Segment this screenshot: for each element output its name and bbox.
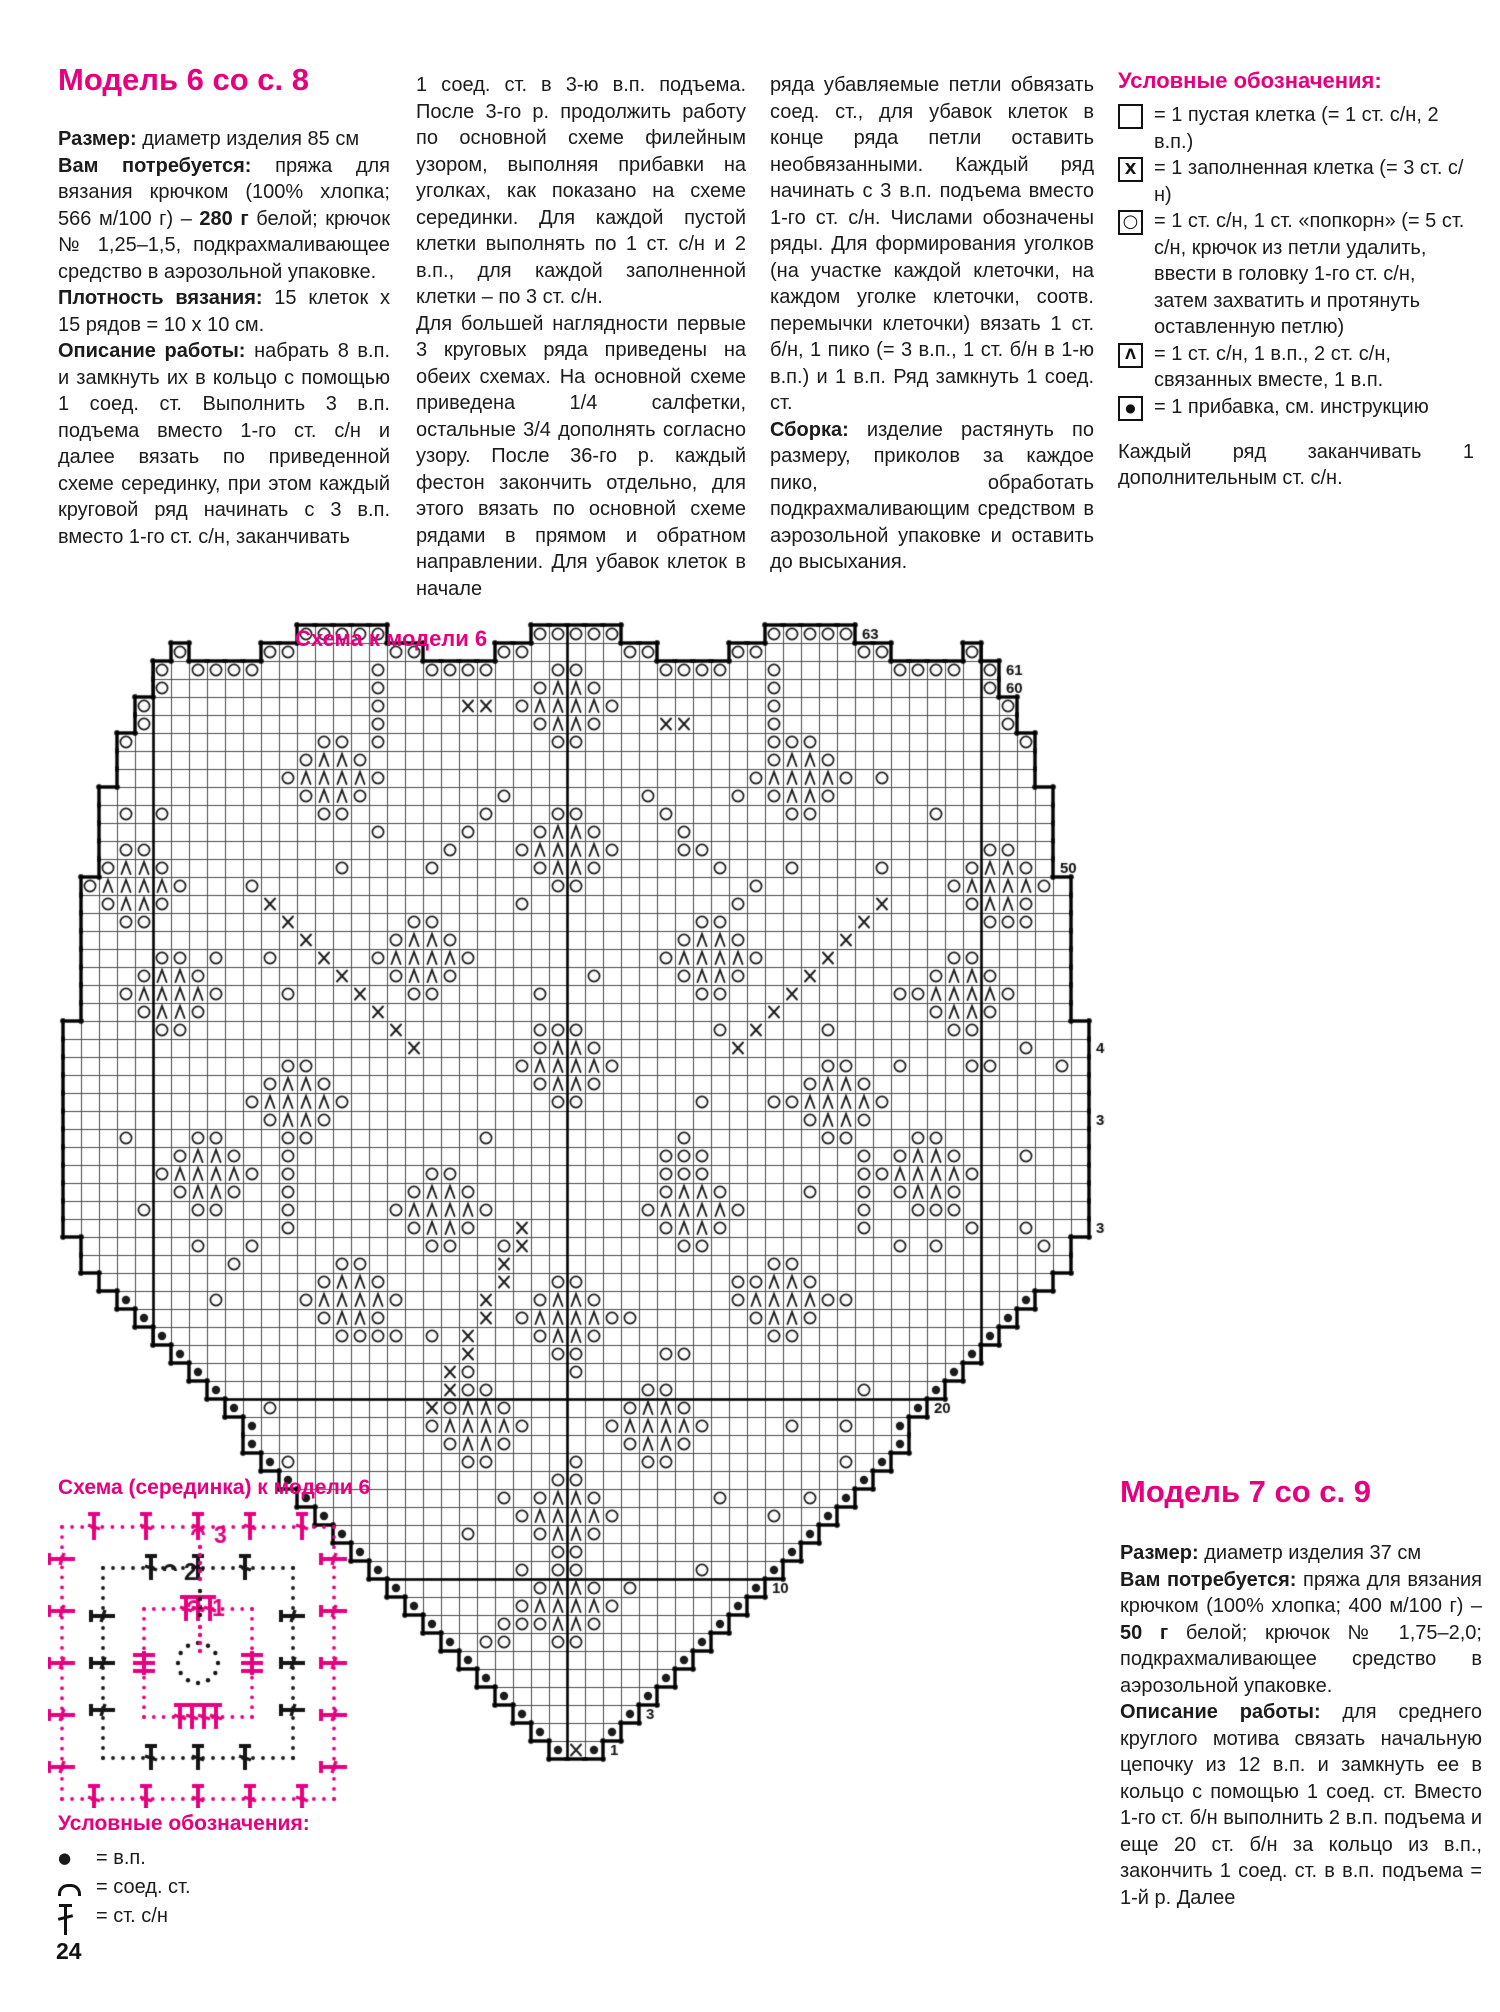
symbol-legend-items: = 1 пустая клетка (= 1 ст. с/н, 2 в.п.)X…: [1118, 102, 1474, 421]
model7-title: Модель 7 со с. 9: [1120, 1474, 1371, 1510]
paragraph: Вам потребуется: пряжа для вязания крючк…: [58, 153, 390, 286]
legend-item: ●= 1 прибавка, см. инструкцию: [1118, 394, 1474, 421]
o-cell-symbol-icon: ○: [1118, 210, 1143, 235]
double-crochet-icon: [58, 1902, 84, 1935]
symbol-legend-note: Каждый ряд заканчивать 1 дополнительным …: [1118, 439, 1474, 492]
paragraph: Описание работы: набрать 8 в.п. и замкну…: [58, 338, 390, 550]
paragraph: Плотность вязания: 15 клеток x 15 рядов …: [58, 285, 390, 338]
model6-title: Модель 6 со с. 8: [58, 62, 309, 98]
small-legend-title: Условные обозначения:: [58, 1812, 310, 1836]
paragraph: Каждый ряд заканчивать 1 дополнительным …: [1118, 439, 1474, 492]
paragraph: Сборка: изделие растянуть по размеру, пр…: [770, 417, 1094, 576]
legend-item: Λ= 1 ст. с/н, 1 в.п., 2 ст. с/н, связанн…: [1118, 341, 1474, 394]
paragraph: 1 соед. ст. в 3-ю в.п. подъема. После 3-…: [416, 72, 746, 311]
small-legend-item: ●= в.п.: [58, 1844, 358, 1873]
paragraph: Размер: диаметр изделия 85 см: [58, 126, 390, 153]
small-legend-item-text: = соед. ст.: [96, 1873, 191, 1902]
model6-column-3: ряда убавляемые петли обвязать соед. ст.…: [770, 72, 1094, 576]
legend-item: ○= 1 ст. с/н, 1 ст. «попкорн» (= 5 ст. с…: [1118, 208, 1474, 341]
small-legend-items: ●= в.п.= соед. ст.= ст. с/н: [58, 1844, 358, 1935]
model6-column-1: Размер: диаметр изделия 85 смВам потребу…: [58, 126, 390, 550]
magazine-page: Модель 6 со с. 8 Размер: диаметр изделия…: [0, 0, 1500, 2012]
model7-text: Размер: диаметр изделия 37 смВам потребу…: [1120, 1540, 1482, 1911]
paragraph: Для большей наглядности первые 3 круговы…: [416, 311, 746, 603]
lambda-cell-symbol-icon: Λ: [1118, 343, 1143, 368]
slip-stitch-icon: [58, 1873, 84, 1896]
x-cell-symbol-icon: X: [1118, 157, 1143, 182]
legend-item-text: = 1 пустая клетка (= 1 ст. с/н, 2 в.п.): [1154, 102, 1474, 155]
main-chart-title: Схема к модели 6: [295, 626, 487, 652]
chain-stitch-icon: ●: [58, 1844, 84, 1873]
legend-item-text: = 1 ст. с/н, 1 в.п., 2 ст. с/н, связанны…: [1154, 341, 1474, 394]
small-legend-item-text: = ст. с/н: [96, 1902, 168, 1931]
legend-item: = 1 пустая клетка (= 1 ст. с/н, 2 в.п.): [1118, 102, 1474, 155]
small-legend-item: = соед. ст.: [58, 1873, 358, 1902]
legend-item: X= 1 заполненная клетка (= 3 ст. с/н): [1118, 155, 1474, 208]
paragraph: ряда убавляемые петли обвязать соед. ст.…: [770, 72, 1094, 417]
legend-item-text: = 1 ст. с/н, 1 ст. «попкорн» (= 5 ст. с/…: [1154, 208, 1474, 341]
paragraph: Вам потребуется: пряжа для вязания крючк…: [1120, 1567, 1482, 1700]
center-motif-chart: [48, 1503, 348, 1808]
paragraph: Описание работы: для среднего круглого м…: [1120, 1699, 1482, 1911]
small-legend-item: = ст. с/н: [58, 1902, 358, 1935]
empty-cell-symbol-icon: [1118, 104, 1143, 129]
legend-item-text: = 1 заполненная клетка (= 3 ст. с/н): [1154, 155, 1474, 208]
center-chart-title: Схема (серединка) к модели 6: [58, 1476, 370, 1500]
symbol-legend-title: Условные обозначения:: [1118, 68, 1474, 94]
small-legend-item-text: = в.п.: [96, 1844, 146, 1873]
legend-item-text: = 1 прибавка, см. инструкцию: [1154, 394, 1474, 421]
page-number: 24: [56, 1938, 82, 1965]
model6-column-2: 1 соед. ст. в 3-ю в.п. подъема. После 3-…: [416, 72, 746, 602]
symbol-legend: Условные обозначения: = 1 пустая клетка …: [1118, 68, 1474, 492]
paragraph: Размер: диаметр изделия 37 см: [1120, 1540, 1482, 1567]
dot-cell-symbol-icon: ●: [1118, 396, 1143, 421]
